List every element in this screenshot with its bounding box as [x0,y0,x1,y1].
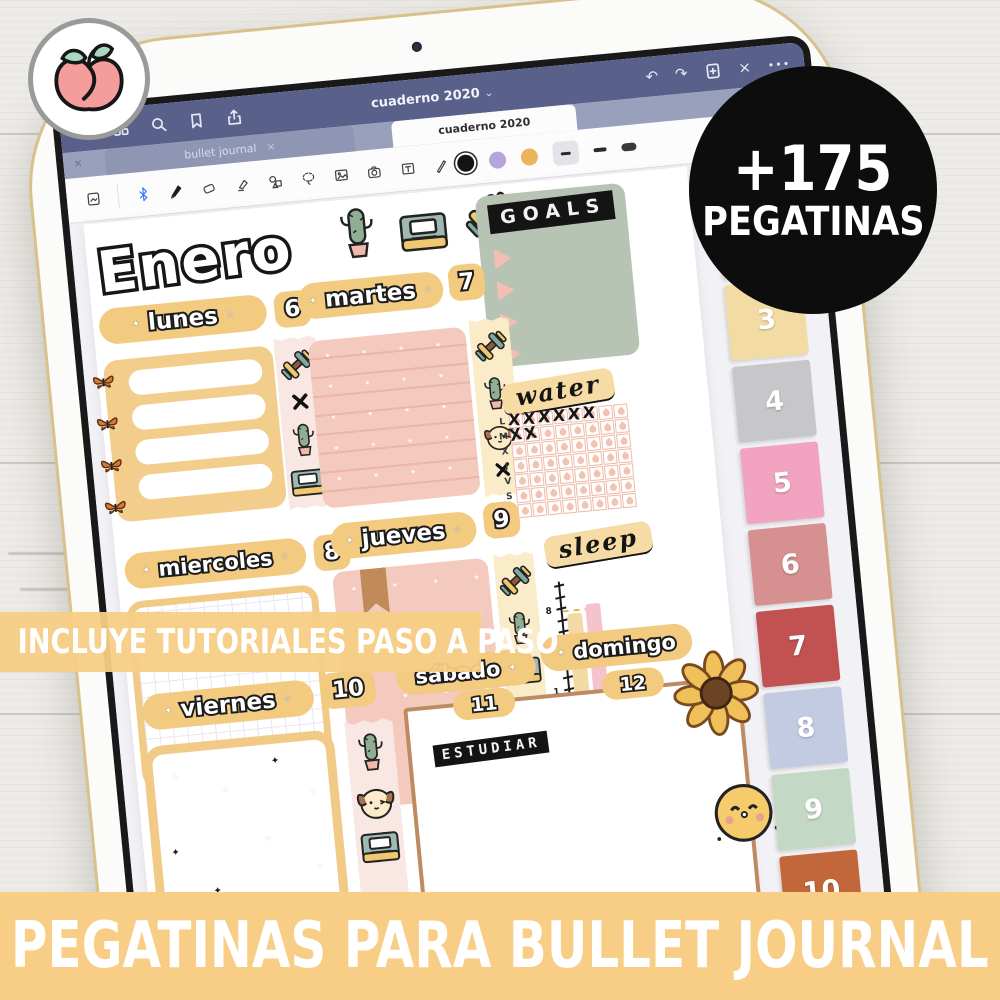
page-thumbnail-icon[interactable] [85,188,102,208]
book-sticker [396,210,452,257]
title-banner-text: PEGATINAS PARA BULLET JOURNAL [11,909,989,983]
list-slot [128,358,264,396]
color-swatches [456,134,637,175]
product-image: cuaderno 2020 ⌄ ↶ ↷ × ••• × bullet journ… [0,0,1000,1000]
ink-color-yellow[interactable] [520,147,539,166]
day-number-domingo: 12 [601,666,665,701]
list-slot [131,393,267,431]
toolbar-divider [117,184,120,208]
sparkle-icon: ✧ [283,693,292,705]
ink-color-purple[interactable] [488,150,507,169]
journal-page: Enero GOALS ✦ lunes ✧ 6 [83,167,773,1000]
camera-icon[interactable] [366,161,383,181]
tab-close-icon[interactable]: × [266,139,276,153]
sparkle-icon: ✧ [453,524,462,536]
title-banner: PEGATINAS PARA BULLET JOURNAL [0,892,1000,1000]
dumbbell-sticker [471,326,510,365]
side-tab-8[interactable]: 8 [763,686,848,769]
tutorials-banner: INCLUYE TUTORIALES PASO A PASO [0,612,481,672]
image-icon[interactable] [333,164,350,184]
front-camera-icon [411,41,422,52]
side-tab-6[interactable]: 6 [748,523,833,606]
day-number-jueves: 9 [482,500,521,539]
cactus-sticker [354,728,388,775]
ribbon-sticker [360,567,390,615]
share-icon[interactable] [225,107,244,126]
sparkle-icon: ✦ [308,295,317,307]
sparkle-icon: ✧ [280,551,289,563]
butterfly-sticker [90,370,118,394]
day-number-martes: 7 [447,263,486,302]
side-tab-9[interactable]: 9 [771,768,856,851]
lunes-slots [104,357,286,503]
side-tab-7[interactable]: 7 [756,605,841,688]
tab-label: bullet journal [184,141,257,161]
chevron-down-icon: ⌄ [484,85,494,99]
sparkle-icon: ✦ [131,318,140,330]
day-number-sabado: 11 [452,687,516,722]
peach-logo [28,18,150,140]
marker-icon[interactable] [432,155,449,175]
sparkle-icon: ✦ [164,705,173,717]
water-grid: LXXXXXXMXXXJVSD [496,403,637,519]
sunflower-sticker [669,646,763,740]
redo-icon[interactable]: ↷ [674,66,688,82]
dog-sticker [352,781,399,823]
butterfly-sticker [94,412,122,436]
side-tab-4[interactable]: 4 [732,360,817,443]
add-page-icon[interactable] [704,61,723,80]
day-header-jueves: ✦ jueves ✧ [329,510,478,560]
highlighter-icon[interactable] [234,174,251,194]
text-icon[interactable] [399,158,416,178]
sparkle-icon: ✦ [142,564,151,576]
lunes-box [103,345,288,523]
tabbar-close-icon[interactable]: × [73,156,83,170]
butterfly-sticker [98,454,126,478]
tutorials-banner-text: INCLUYE TUTORIALES PASO A PASO [0,622,558,662]
estudiar-label: ESTUDIAR [433,731,550,768]
badge-word: PEGATINAS [702,202,924,242]
bookmark-icon[interactable] [187,111,206,130]
x-mark-sticker [291,392,311,412]
ink-color-black[interactable] [456,153,475,172]
sparkle-icon: ✦ [345,535,354,547]
pen-icon[interactable] [168,180,185,200]
bluetooth-icon [135,184,152,204]
dumbbell-sticker [496,561,535,600]
tab-label: cuaderno 2020 [438,115,531,137]
day-header-martes: ✦ martes ✧ [296,271,445,321]
sparkle-icon: ✧ [423,284,432,296]
lasso-icon[interactable] [300,168,317,188]
sparkle-icon: ✧ [225,309,234,321]
badge-count: +175 [733,138,893,200]
peach-icon [46,36,132,122]
stroke-width-medium[interactable] [593,147,606,152]
stroke-width-small[interactable] [552,140,580,166]
list-slot [138,463,274,501]
day-header-miercoles: ✦ miercoles ✧ [123,537,308,590]
goals-label: GOALS [487,190,616,234]
martes-box [308,327,481,509]
side-tab-5[interactable]: 5 [740,441,825,524]
undo-icon[interactable]: ↶ [645,68,659,84]
shapes-icon[interactable] [267,171,284,191]
day-number-viernes: 10 [320,669,377,710]
page-title: Enero [94,216,296,307]
butterfly-sticker [102,496,130,520]
sparkle-icon: ✦ [508,662,517,674]
cactus-sticker [335,203,380,263]
eraser-icon[interactable] [201,177,218,197]
book-sticker [358,829,403,867]
search-icon[interactable] [149,115,168,134]
sticker-count-badge: +175 PEGATINAS [689,66,937,314]
list-slot [134,428,270,466]
stroke-width-large[interactable] [621,142,637,151]
close-icon[interactable]: × [738,59,752,75]
cactus-sticker [289,419,319,459]
